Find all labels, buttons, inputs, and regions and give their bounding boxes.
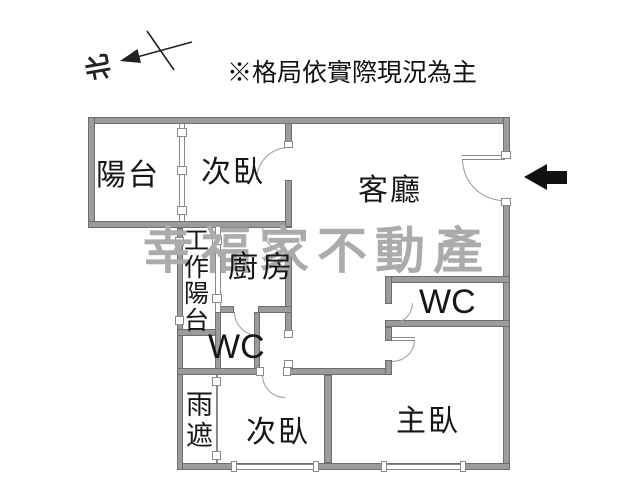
wall [258,306,292,313]
room-label-living-room: 客廳 [358,175,422,207]
entrance-arrow-icon [520,160,570,194]
room-label-master-bedroom: 主臥 [396,406,460,438]
wall [88,117,95,228]
wall-cap [283,367,291,376]
wall [385,360,392,375]
door-leaf [392,337,415,341]
wall [503,200,510,470]
door-leaf [462,155,505,160]
entrance-door-arc [462,159,504,201]
wall [285,368,392,375]
room-label-work-balcony: 工作陽台 [184,228,211,334]
wall [503,117,510,153]
divider-line [216,375,218,463]
wall-cap [177,166,187,175]
window-cap [313,461,319,472]
window-cap [381,461,387,472]
floor-plan: 北 ※格局依實際現況為主 幸福家不動產 [0,0,640,480]
room-label-kitchen: 廚房 [228,252,296,284]
room-label-bedroom-top: 次臥 [201,157,265,189]
window-cap [460,461,466,472]
wall [385,327,392,341]
wall-cap [175,316,184,325]
wall [385,320,510,327]
room-label-wc-left: WC [208,330,265,366]
door-arc [392,340,415,362]
room-label-rain-shelter: 雨遮 [186,390,213,452]
wall-cap [212,377,221,386]
wall [88,117,510,124]
wall-cap [177,128,187,137]
room-label-balcony: 陽台 [96,160,160,192]
window [235,464,315,470]
wall-cap [501,151,511,159]
room-label-wc-right: WC [419,285,476,321]
door-arc [262,375,285,398]
wall [324,375,332,463]
room-label-bedroom-bottom: 次臥 [246,417,310,449]
wall-cap [284,141,293,148]
wall-cap [256,367,264,376]
wall-cap [212,294,222,303]
window-cap [231,461,237,472]
wall [177,368,262,375]
wall-cap [284,330,293,338]
wall-cap [501,198,511,206]
wall-cap [212,451,221,460]
caption-text: ※格局依實際現況為主 [227,53,477,89]
window [383,464,462,470]
